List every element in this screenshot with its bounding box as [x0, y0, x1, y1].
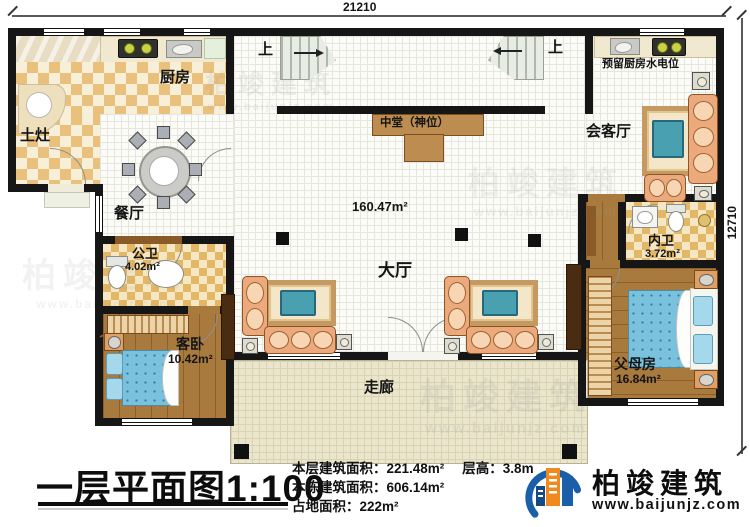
land-area-value: 222m² [360, 499, 399, 514]
floor-area-value: 221.48m² [387, 461, 445, 476]
reserved-kitchen-label: 预留厨房水电位 [602, 58, 679, 70]
column [528, 234, 541, 247]
top-dimension-line [12, 15, 726, 17]
wall-left [8, 28, 16, 192]
end-table [692, 72, 710, 90]
wardrobe [588, 276, 612, 396]
stove-icon [118, 39, 158, 58]
height-label: 层高： [462, 461, 503, 476]
stair-arrow [294, 52, 316, 54]
reception-label: 会客厅 [586, 124, 631, 141]
wall-stair-hall [277, 106, 545, 114]
reserved-stove-icon [652, 38, 686, 56]
stat-row: 本栋建筑面积：606.14m² [292, 478, 534, 497]
sofa-cushion [269, 331, 289, 349]
sofa [466, 326, 538, 354]
brand-name: 柏竣建筑 [592, 462, 728, 502]
guest-bedroom-label: 客卧 [176, 337, 204, 352]
sofa-cushion [693, 153, 714, 173]
pillow [693, 296, 713, 326]
washbasin-icon [632, 206, 658, 228]
burner-icon [657, 42, 668, 53]
sofa-cushion [471, 331, 491, 349]
wall-inner-bath-left [618, 202, 626, 260]
stair-arrow-head [493, 47, 501, 55]
parents-room-label: 父母房 [614, 357, 656, 372]
armchair [644, 174, 686, 202]
end-table [242, 338, 258, 354]
inner-bath-area: 3.72m² [645, 248, 680, 260]
wall-kitchen-right [226, 28, 234, 114]
window [44, 28, 84, 36]
dining-table-top [149, 156, 179, 186]
sofa-cushion [246, 282, 264, 304]
window [640, 28, 684, 36]
title-underline-shadow [38, 508, 288, 510]
land-area-label: 占地面积： [292, 499, 360, 514]
end-table [694, 186, 712, 201]
shrine-hall-label: 中堂（神位） [380, 117, 449, 130]
toilet-icon [108, 265, 126, 289]
sofa-cushion [448, 282, 466, 304]
sofa [264, 326, 336, 354]
sofa-cushion [448, 308, 466, 330]
dining-label: 餐厅 [114, 206, 144, 223]
end-table [538, 334, 554, 350]
stat-row: 占地面积：222m² [292, 497, 534, 516]
earth-stove-label: 土灶 [20, 128, 50, 145]
door-gap [588, 194, 625, 202]
toilet-icon [668, 211, 684, 232]
sofa-cushion [291, 331, 311, 349]
burner-icon [124, 43, 135, 54]
window [122, 418, 192, 426]
sink-icon [166, 40, 202, 58]
sofa-cushion [493, 331, 513, 349]
dining-chair [122, 163, 135, 176]
coffee-table [652, 120, 684, 158]
shrine-table-extension [404, 134, 444, 162]
water-heater-icon [698, 214, 711, 227]
door-gap [48, 184, 84, 192]
window [184, 28, 210, 36]
end-table [336, 334, 352, 350]
dining-chair [157, 196, 170, 209]
stairs-up-label: 上 [548, 40, 563, 57]
pillow [693, 334, 713, 364]
brand-website: www.baijunjz.com [592, 497, 741, 513]
column [455, 228, 468, 241]
plan-stats: 本层建筑面积：221.48m²层高：3.8m 本栋建筑面积：606.14m² 占… [292, 459, 534, 516]
earth-stove-pot [26, 92, 52, 118]
tv-cabinet [221, 294, 235, 360]
door-gap [188, 306, 220, 314]
sofa [688, 94, 718, 184]
kitchen-label: 厨房 [160, 70, 190, 87]
wall-vestibule-left [578, 202, 586, 260]
dimension-height-label: 12710 [725, 206, 739, 239]
burner-icon [141, 43, 152, 54]
nightstand [694, 370, 718, 389]
guest-bedroom-area: 10.42m² [168, 353, 213, 366]
dimension-width-label: 21210 [343, 0, 376, 14]
nightstand [104, 333, 124, 351]
wall-parents-top [620, 260, 724, 268]
public-bath-label: 公卫 [132, 247, 158, 261]
inner-bath-label: 内卫 [648, 234, 674, 248]
sofa-cushion [649, 179, 665, 197]
stat-row: 本层建筑面积：221.48m²层高：3.8m [292, 459, 534, 478]
vestibule-door-leaf [587, 206, 596, 256]
stairs-up-label: 上 [258, 42, 273, 59]
window [95, 196, 103, 232]
kitchen-counter-marble [16, 36, 100, 62]
stair-arrow-head [316, 49, 324, 57]
entry-step [44, 192, 90, 208]
burner-icon [671, 42, 682, 53]
reserved-sink-icon [610, 38, 640, 55]
dining-chair [157, 126, 170, 139]
public-bath-door-lintel [115, 236, 182, 244]
corridor-label: 走廊 [364, 380, 394, 397]
stair-arrow [500, 50, 522, 52]
total-area-value: 606.14m² [387, 480, 445, 495]
brand-logo-icon [518, 456, 584, 522]
wall-bath-bedroom-divider [103, 306, 188, 314]
column [276, 232, 289, 245]
tv-cabinet [566, 264, 582, 350]
sofa-cushion [246, 308, 264, 330]
pillow [106, 353, 123, 375]
hall-area-label: 160.47m² [352, 200, 408, 214]
wall-bath-top [103, 236, 115, 244]
public-bath-area: 4.02m² [125, 261, 160, 273]
right-dimension-line [741, 18, 743, 454]
porch-column [234, 444, 249, 459]
wall-kitchen-bottom [8, 184, 48, 192]
wardrobe [107, 315, 189, 334]
dining-chair [189, 163, 202, 176]
sofa-cushion [515, 331, 535, 349]
sofa-cushion [313, 331, 333, 349]
floor-area-label: 本层建筑面积： [292, 461, 387, 476]
cutting-board [204, 38, 226, 59]
sofa-cushion [693, 101, 714, 121]
wall-inner-bath-top [578, 194, 588, 202]
nightstand [694, 270, 718, 289]
window [104, 28, 140, 36]
corridor-porch-floor [230, 360, 588, 464]
coffee-table [482, 290, 518, 316]
floor-plan-canvas: 21210 12710 柏竣建筑 www.baijunjz.com 柏竣建筑 w… [0, 0, 750, 527]
total-area-label: 本栋建筑面积： [292, 480, 387, 495]
title-underline [38, 502, 288, 506]
wall-reception-left [585, 36, 593, 114]
coffee-table [280, 290, 316, 316]
sofa-cushion [666, 179, 682, 197]
dimension-tick [721, 6, 731, 16]
door-gap [590, 260, 620, 268]
end-table [444, 338, 460, 354]
window [628, 398, 698, 406]
pillow [106, 378, 123, 400]
hall-label: 大厅 [378, 262, 412, 281]
parents-room-area: 16.84m² [616, 373, 661, 386]
wall-hall-front [340, 352, 388, 360]
sofa-cushion [693, 127, 714, 147]
